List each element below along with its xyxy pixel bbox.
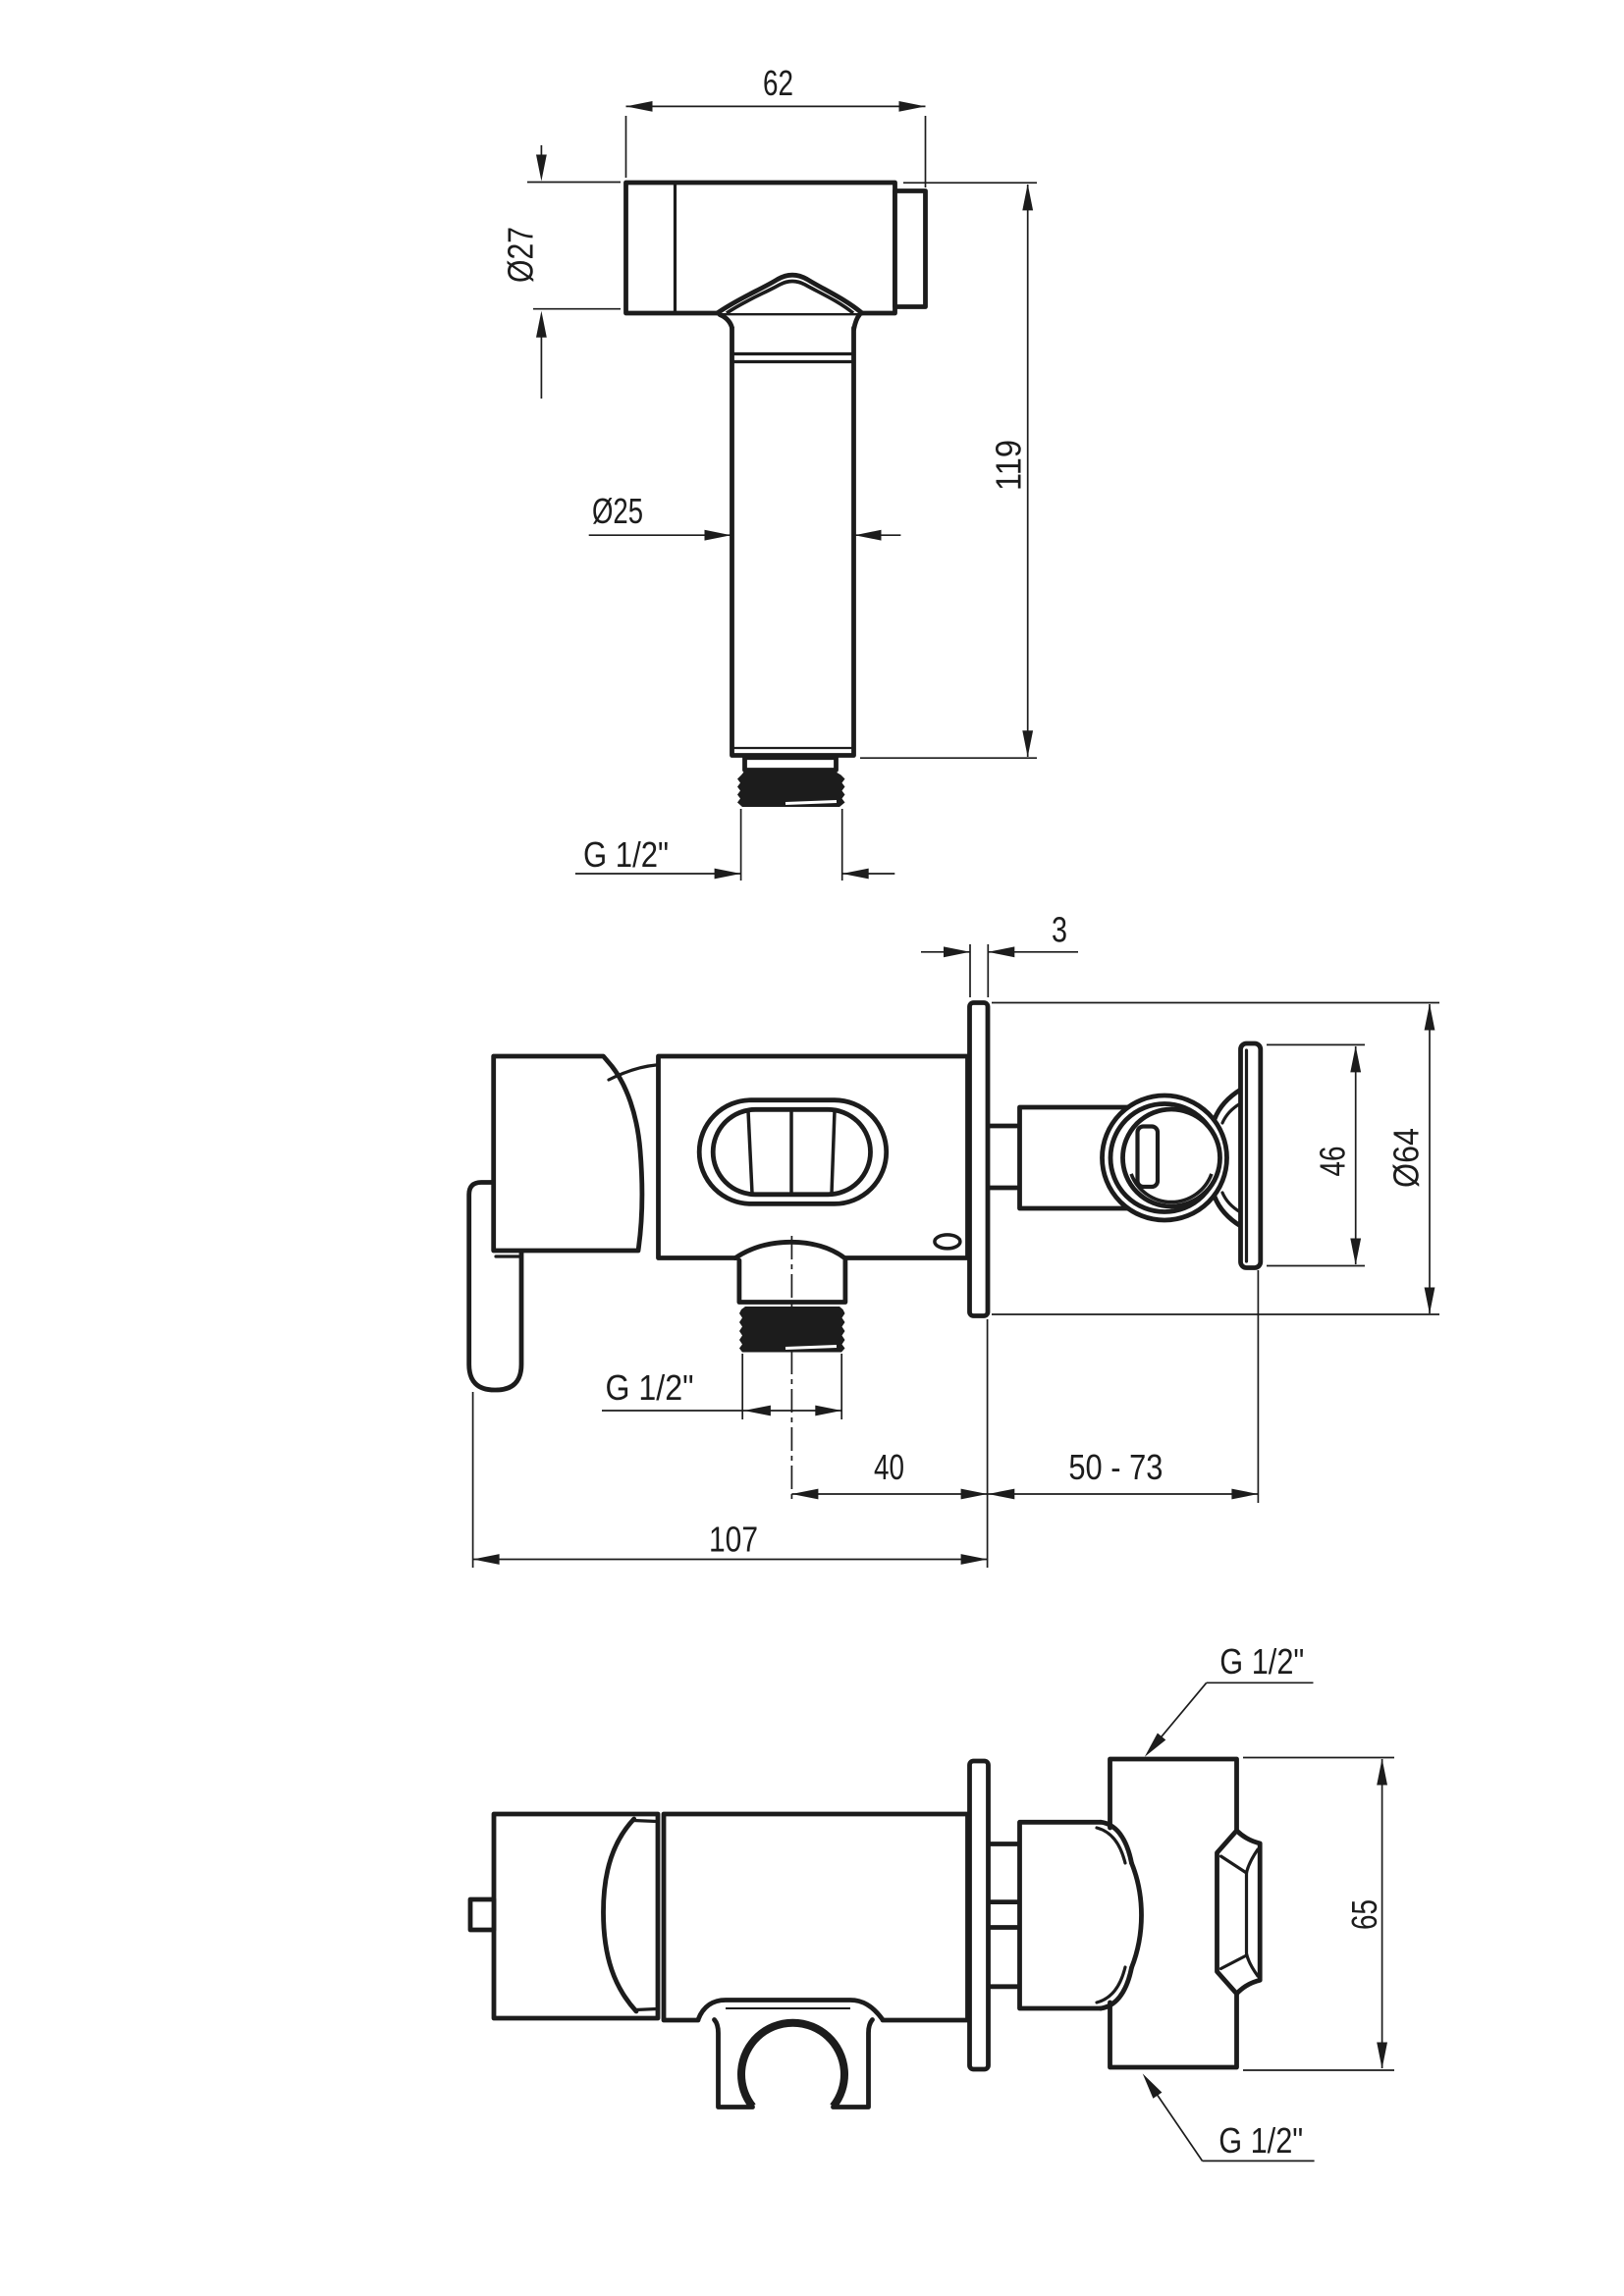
svg-text:50 - 73: 50 - 73 bbox=[1068, 1447, 1163, 1487]
svg-text:62: 62 bbox=[763, 63, 793, 103]
svg-text:G 1/2": G 1/2" bbox=[606, 1367, 694, 1408]
svg-text:40: 40 bbox=[874, 1447, 904, 1487]
svg-text:65: 65 bbox=[1344, 1899, 1384, 1930]
svg-text:Ø27: Ø27 bbox=[501, 227, 541, 283]
svg-text:Ø64: Ø64 bbox=[1386, 1128, 1427, 1188]
svg-text:46: 46 bbox=[1313, 1147, 1353, 1177]
svg-text:G 1/2": G 1/2" bbox=[1219, 1641, 1304, 1682]
svg-text:3: 3 bbox=[1052, 909, 1067, 949]
svg-text:G 1/2": G 1/2" bbox=[1218, 2120, 1303, 2161]
svg-text:Ø25: Ø25 bbox=[592, 491, 643, 531]
svg-text:119: 119 bbox=[988, 440, 1028, 491]
svg-text:G 1/2": G 1/2" bbox=[583, 834, 669, 875]
svg-text:107: 107 bbox=[709, 1520, 758, 1560]
